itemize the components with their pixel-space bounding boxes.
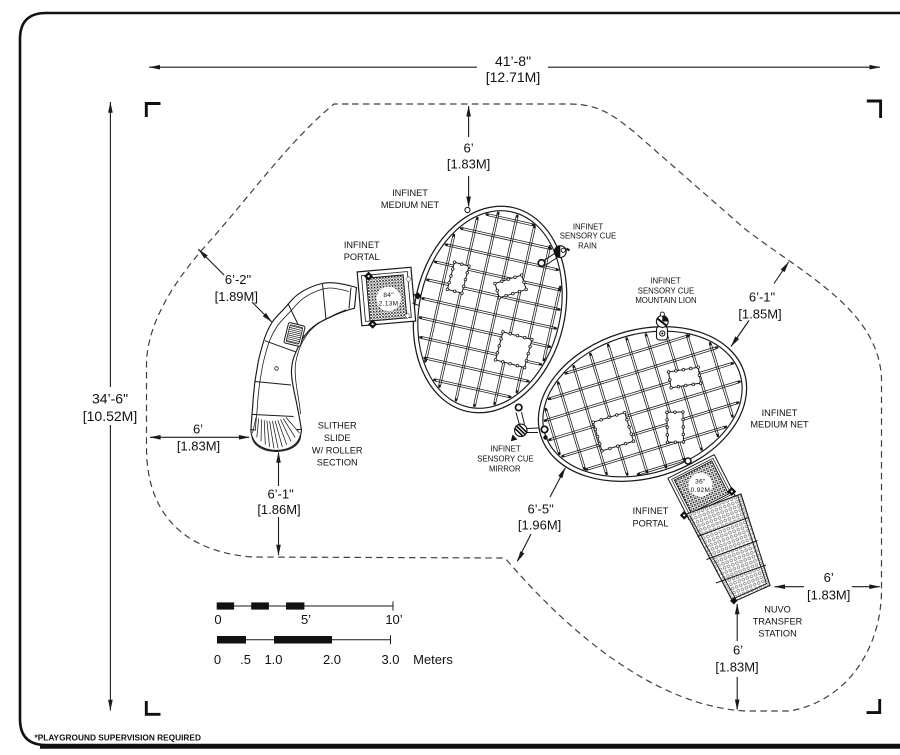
svg-text:STATION: STATION — [758, 628, 796, 638]
svg-text:INFINET: INFINET — [633, 506, 669, 516]
svg-text:[1.89M]: [1.89M] — [215, 289, 258, 304]
svg-text:SLITHER: SLITHER — [318, 421, 357, 431]
svg-text:84": 84" — [383, 292, 394, 299]
svg-text:MEDIUM NET: MEDIUM NET — [750, 420, 809, 430]
svg-text:.5: .5 — [240, 652, 251, 667]
svg-text:6’-5": 6’-5" — [527, 502, 554, 517]
svg-text:TRANSFER: TRANSFER — [753, 617, 803, 627]
svg-text:NUVO: NUVO — [764, 605, 791, 615]
svg-text:INFINET: INFINET — [573, 222, 604, 231]
svg-text:6’: 6’ — [824, 570, 834, 585]
svg-text:RAIN: RAIN — [578, 241, 597, 250]
svg-text:SENSORY CUE: SENSORY CUE — [477, 455, 533, 464]
svg-text:36": 36" — [695, 478, 706, 485]
svg-text:[1.96M]: [1.96M] — [518, 518, 561, 533]
svg-text:6’: 6’ — [733, 643, 743, 658]
svg-text:0.92M: 0.92M — [691, 487, 711, 494]
svg-text:3.0: 3.0 — [381, 652, 399, 667]
svg-text:2.0: 2.0 — [323, 652, 341, 667]
svg-text:INFINET: INFINET — [392, 188, 428, 198]
svg-text:W/ ROLLER: W/ ROLLER — [312, 445, 363, 455]
svg-text:[1.85M]: [1.85M] — [738, 307, 781, 322]
svg-text:SECTION: SECTION — [317, 458, 358, 468]
svg-text:6’-2": 6’-2" — [225, 272, 252, 287]
svg-text:INFINET: INFINET — [344, 240, 380, 250]
svg-text:SLIDE: SLIDE — [324, 433, 351, 443]
svg-text:[12.71M]: [12.71M] — [486, 69, 540, 85]
svg-text:6’: 6’ — [464, 141, 474, 156]
svg-text:[1.83M]: [1.83M] — [447, 157, 490, 172]
svg-text:MEDIUM NET: MEDIUM NET — [381, 200, 440, 210]
svg-text:MIRROR: MIRROR — [489, 464, 521, 473]
svg-text:Meters: Meters — [413, 652, 453, 667]
svg-text:6’: 6’ — [193, 422, 203, 437]
svg-text:[1.83M]: [1.83M] — [715, 660, 758, 675]
svg-text:PORTAL: PORTAL — [633, 519, 669, 529]
svg-text:[10.52M]: [10.52M] — [83, 408, 137, 424]
svg-text:PORTAL: PORTAL — [344, 252, 380, 262]
svg-text:1.0: 1.0 — [264, 652, 282, 667]
svg-text:[1.86M]: [1.86M] — [257, 502, 300, 517]
svg-text:INFINET: INFINET — [650, 277, 681, 286]
svg-text:0: 0 — [214, 652, 221, 667]
svg-text:6’-1": 6’-1" — [749, 290, 776, 305]
svg-text:2.13M: 2.13M — [379, 301, 399, 308]
svg-text:*PLAYGROUND SUPERVISION REQUIR: *PLAYGROUND SUPERVISION REQUIRED — [35, 733, 201, 743]
svg-text:SENSORY CUE: SENSORY CUE — [560, 232, 616, 241]
svg-text:MOUNTAIN LION: MOUNTAIN LION — [635, 296, 696, 305]
svg-text:[1.83M]: [1.83M] — [177, 439, 220, 454]
svg-text:SENSORY CUE: SENSORY CUE — [638, 287, 694, 296]
svg-text:5’: 5’ — [301, 612, 311, 627]
svg-text:0: 0 — [214, 612, 221, 627]
svg-text:INFINET: INFINET — [490, 445, 521, 454]
svg-text:6’-1": 6’-1" — [267, 487, 294, 502]
svg-text:INFINET: INFINET — [762, 408, 798, 418]
svg-text:34’-6": 34’-6" — [92, 391, 128, 407]
svg-text:10’: 10’ — [385, 612, 402, 627]
svg-text:[1.83M]: [1.83M] — [807, 588, 850, 603]
svg-text:41’-8": 41’-8" — [495, 53, 531, 69]
